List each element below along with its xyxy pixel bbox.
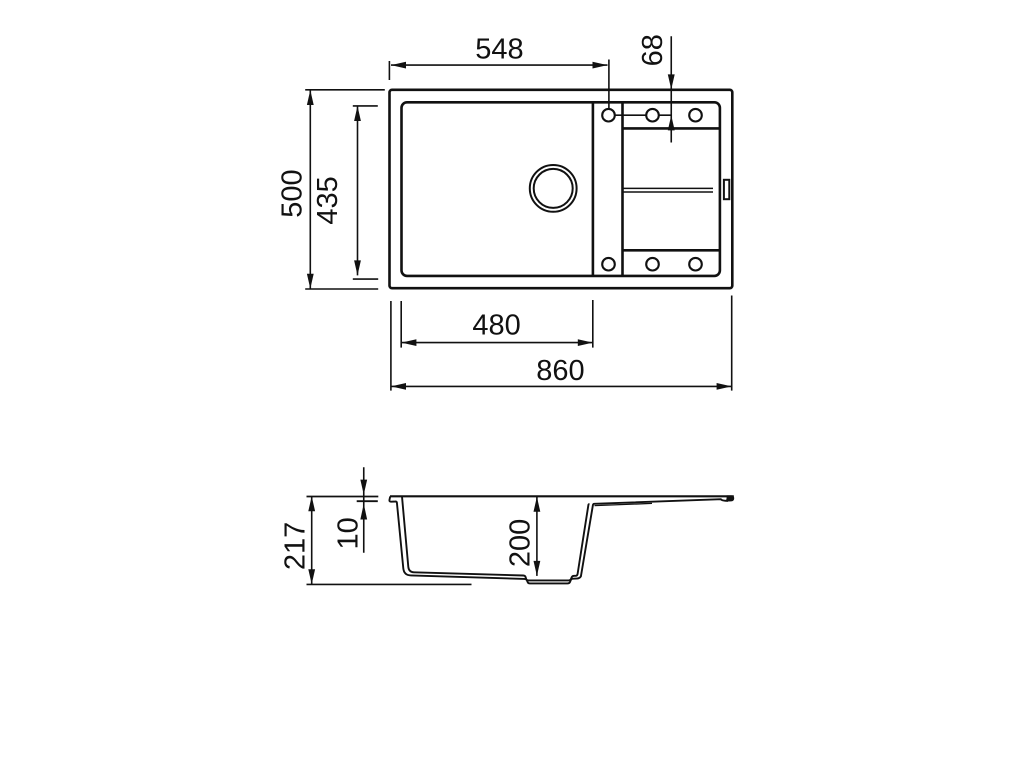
- svg-text:68: 68: [637, 34, 669, 66]
- svg-text:217: 217: [280, 522, 312, 570]
- svg-text:480: 480: [472, 309, 520, 341]
- svg-text:10: 10: [333, 517, 365, 549]
- svg-text:860: 860: [536, 355, 584, 387]
- svg-text:500: 500: [277, 169, 309, 217]
- svg-text:435: 435: [312, 176, 344, 224]
- svg-text:200: 200: [505, 519, 537, 567]
- svg-text:548: 548: [475, 34, 523, 66]
